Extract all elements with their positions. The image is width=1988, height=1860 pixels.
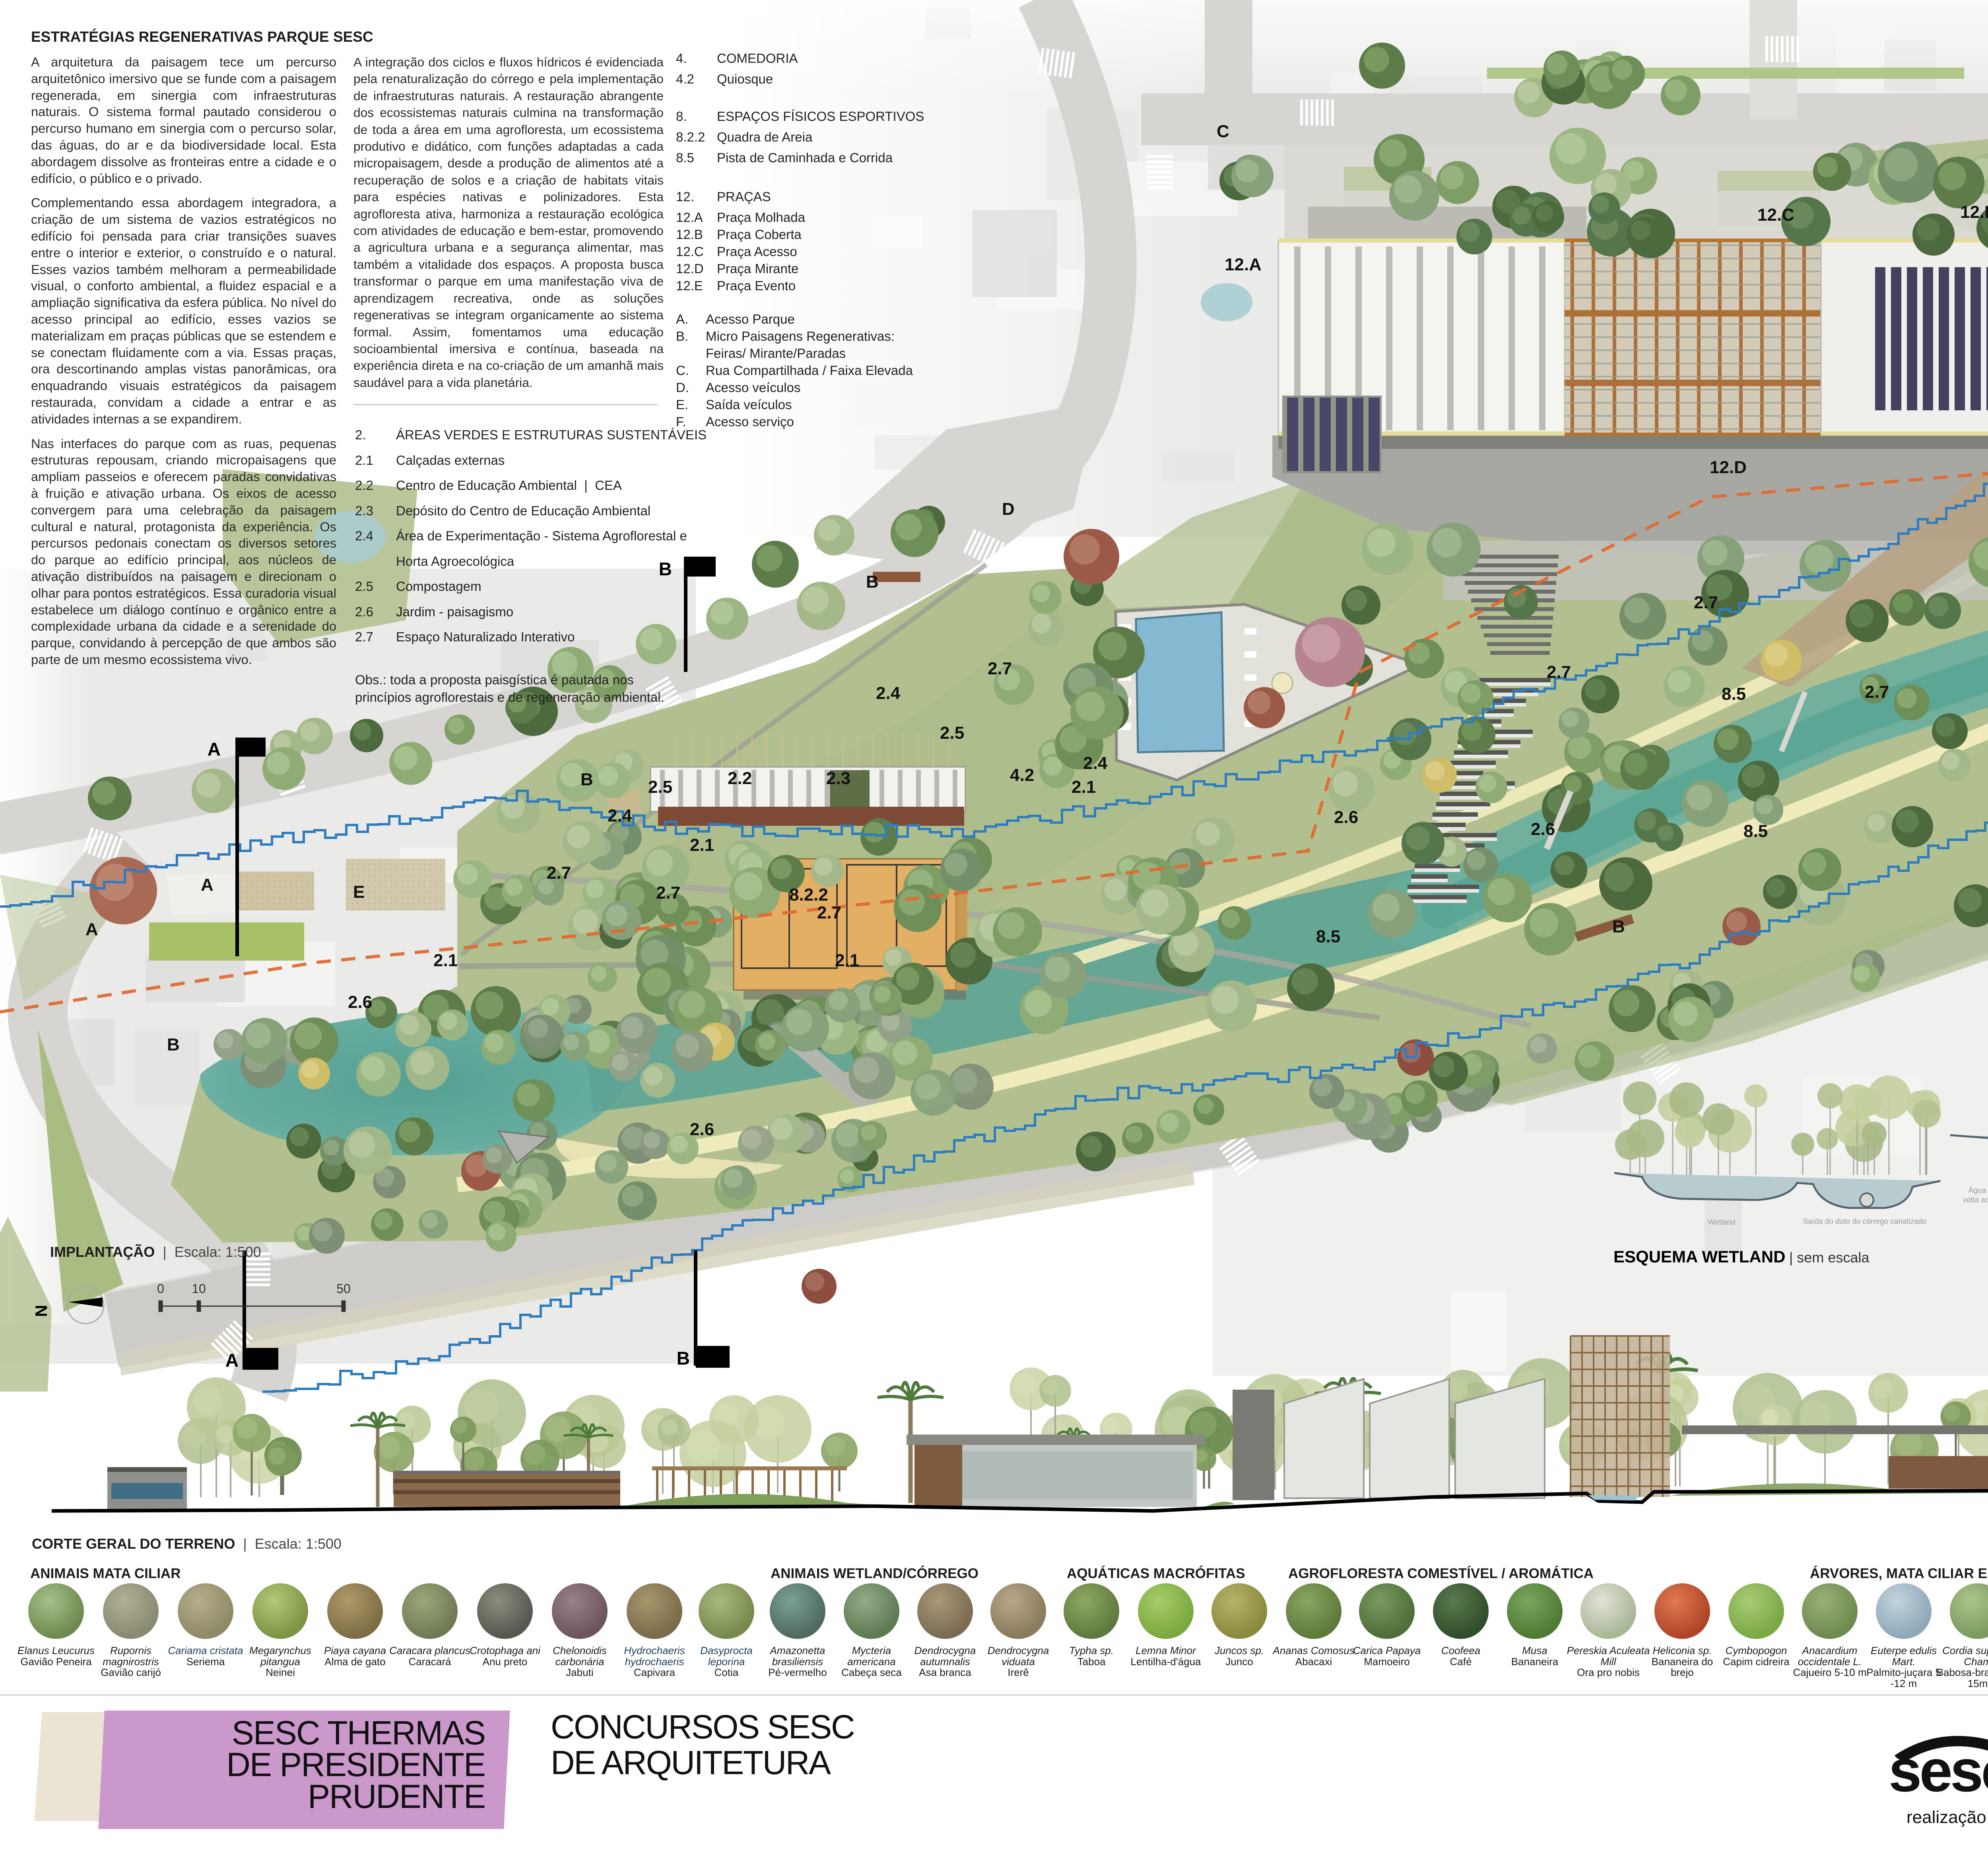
svg-text:A: A	[208, 739, 221, 759]
svg-text:A: A	[201, 875, 214, 895]
svg-text:2.7: 2.7	[1865, 682, 1889, 702]
svg-text:2.5: 2.5	[648, 777, 672, 797]
svg-text:4.2: 4.2	[1010, 765, 1034, 785]
svg-text:2.4: 2.4	[876, 683, 901, 703]
svg-text:2.6: 2.6	[1531, 819, 1555, 839]
svg-text:2.1: 2.1	[690, 835, 714, 855]
svg-text:8.5: 8.5	[1722, 684, 1746, 704]
svg-text:realização: realização	[1906, 1808, 1986, 1827]
svg-text:50: 50	[336, 1281, 351, 1296]
svg-text:2.7: 2.7	[1547, 662, 1571, 682]
svg-text:2.7: 2.7	[988, 659, 1012, 678]
svg-text:Água tratada: Água tratada	[1969, 1186, 1988, 1195]
svg-text:D: D	[1002, 499, 1015, 519]
svg-text:A: A	[85, 920, 98, 939]
svg-text:2.6: 2.6	[348, 992, 372, 1012]
svg-text:2.1: 2.1	[835, 951, 859, 970]
svg-text:8.2.2: 8.2.2	[789, 885, 828, 905]
svg-text:2.7: 2.7	[817, 903, 841, 922]
svg-text:2.6: 2.6	[1334, 808, 1358, 827]
svg-text:12.B: 12.B	[1960, 202, 1988, 222]
svg-text:2.5: 2.5	[940, 723, 964, 743]
svg-text:volta ao córrego: volta ao córrego	[1963, 1196, 1988, 1204]
svg-text:B: B	[677, 1348, 690, 1369]
svg-text:2.7: 2.7	[547, 863, 571, 883]
svg-text:2.6: 2.6	[690, 1120, 714, 1139]
svg-text:| sem escala: | sem escala	[1789, 1249, 1870, 1266]
svg-text:2.2: 2.2	[728, 769, 752, 788]
svg-text:A: A	[225, 1350, 239, 1371]
svg-text:2.7: 2.7	[1694, 593, 1718, 612]
svg-text:12.A: 12.A	[1225, 255, 1262, 274]
svg-text:Saída do duto do córrego canal: Saída do duto do córrego canalizado	[1803, 1217, 1927, 1226]
svg-text:2.7: 2.7	[656, 883, 680, 903]
svg-text:0: 0	[157, 1281, 164, 1296]
svg-text:B: B	[167, 1035, 180, 1054]
svg-text:12.C: 12.C	[1757, 205, 1794, 225]
svg-text:2.4: 2.4	[608, 806, 632, 825]
svg-text:2.4: 2.4	[1083, 753, 1108, 773]
svg-text:8.5: 8.5	[1743, 821, 1768, 841]
svg-text:8.5: 8.5	[1316, 927, 1340, 946]
svg-text:2.1: 2.1	[1072, 777, 1096, 797]
svg-text:C: C	[1217, 122, 1229, 141]
svg-text:10: 10	[192, 1281, 206, 1296]
svg-text:Wetland: Wetland	[1708, 1218, 1735, 1227]
svg-text:2.3: 2.3	[826, 769, 850, 788]
svg-text:B: B	[580, 770, 593, 789]
svg-text:2.1: 2.1	[433, 951, 458, 970]
svg-text:B: B	[866, 572, 879, 592]
svg-text:B: B	[1612, 917, 1625, 936]
svg-text:sesc: sesc	[1889, 1737, 1988, 1804]
svg-text:ESQUEMA WETLAND: ESQUEMA WETLAND	[1613, 1247, 1785, 1266]
svg-text:12.D: 12.D	[1710, 458, 1747, 477]
svg-text:N: N	[32, 1305, 50, 1317]
svg-text:E: E	[353, 882, 365, 902]
